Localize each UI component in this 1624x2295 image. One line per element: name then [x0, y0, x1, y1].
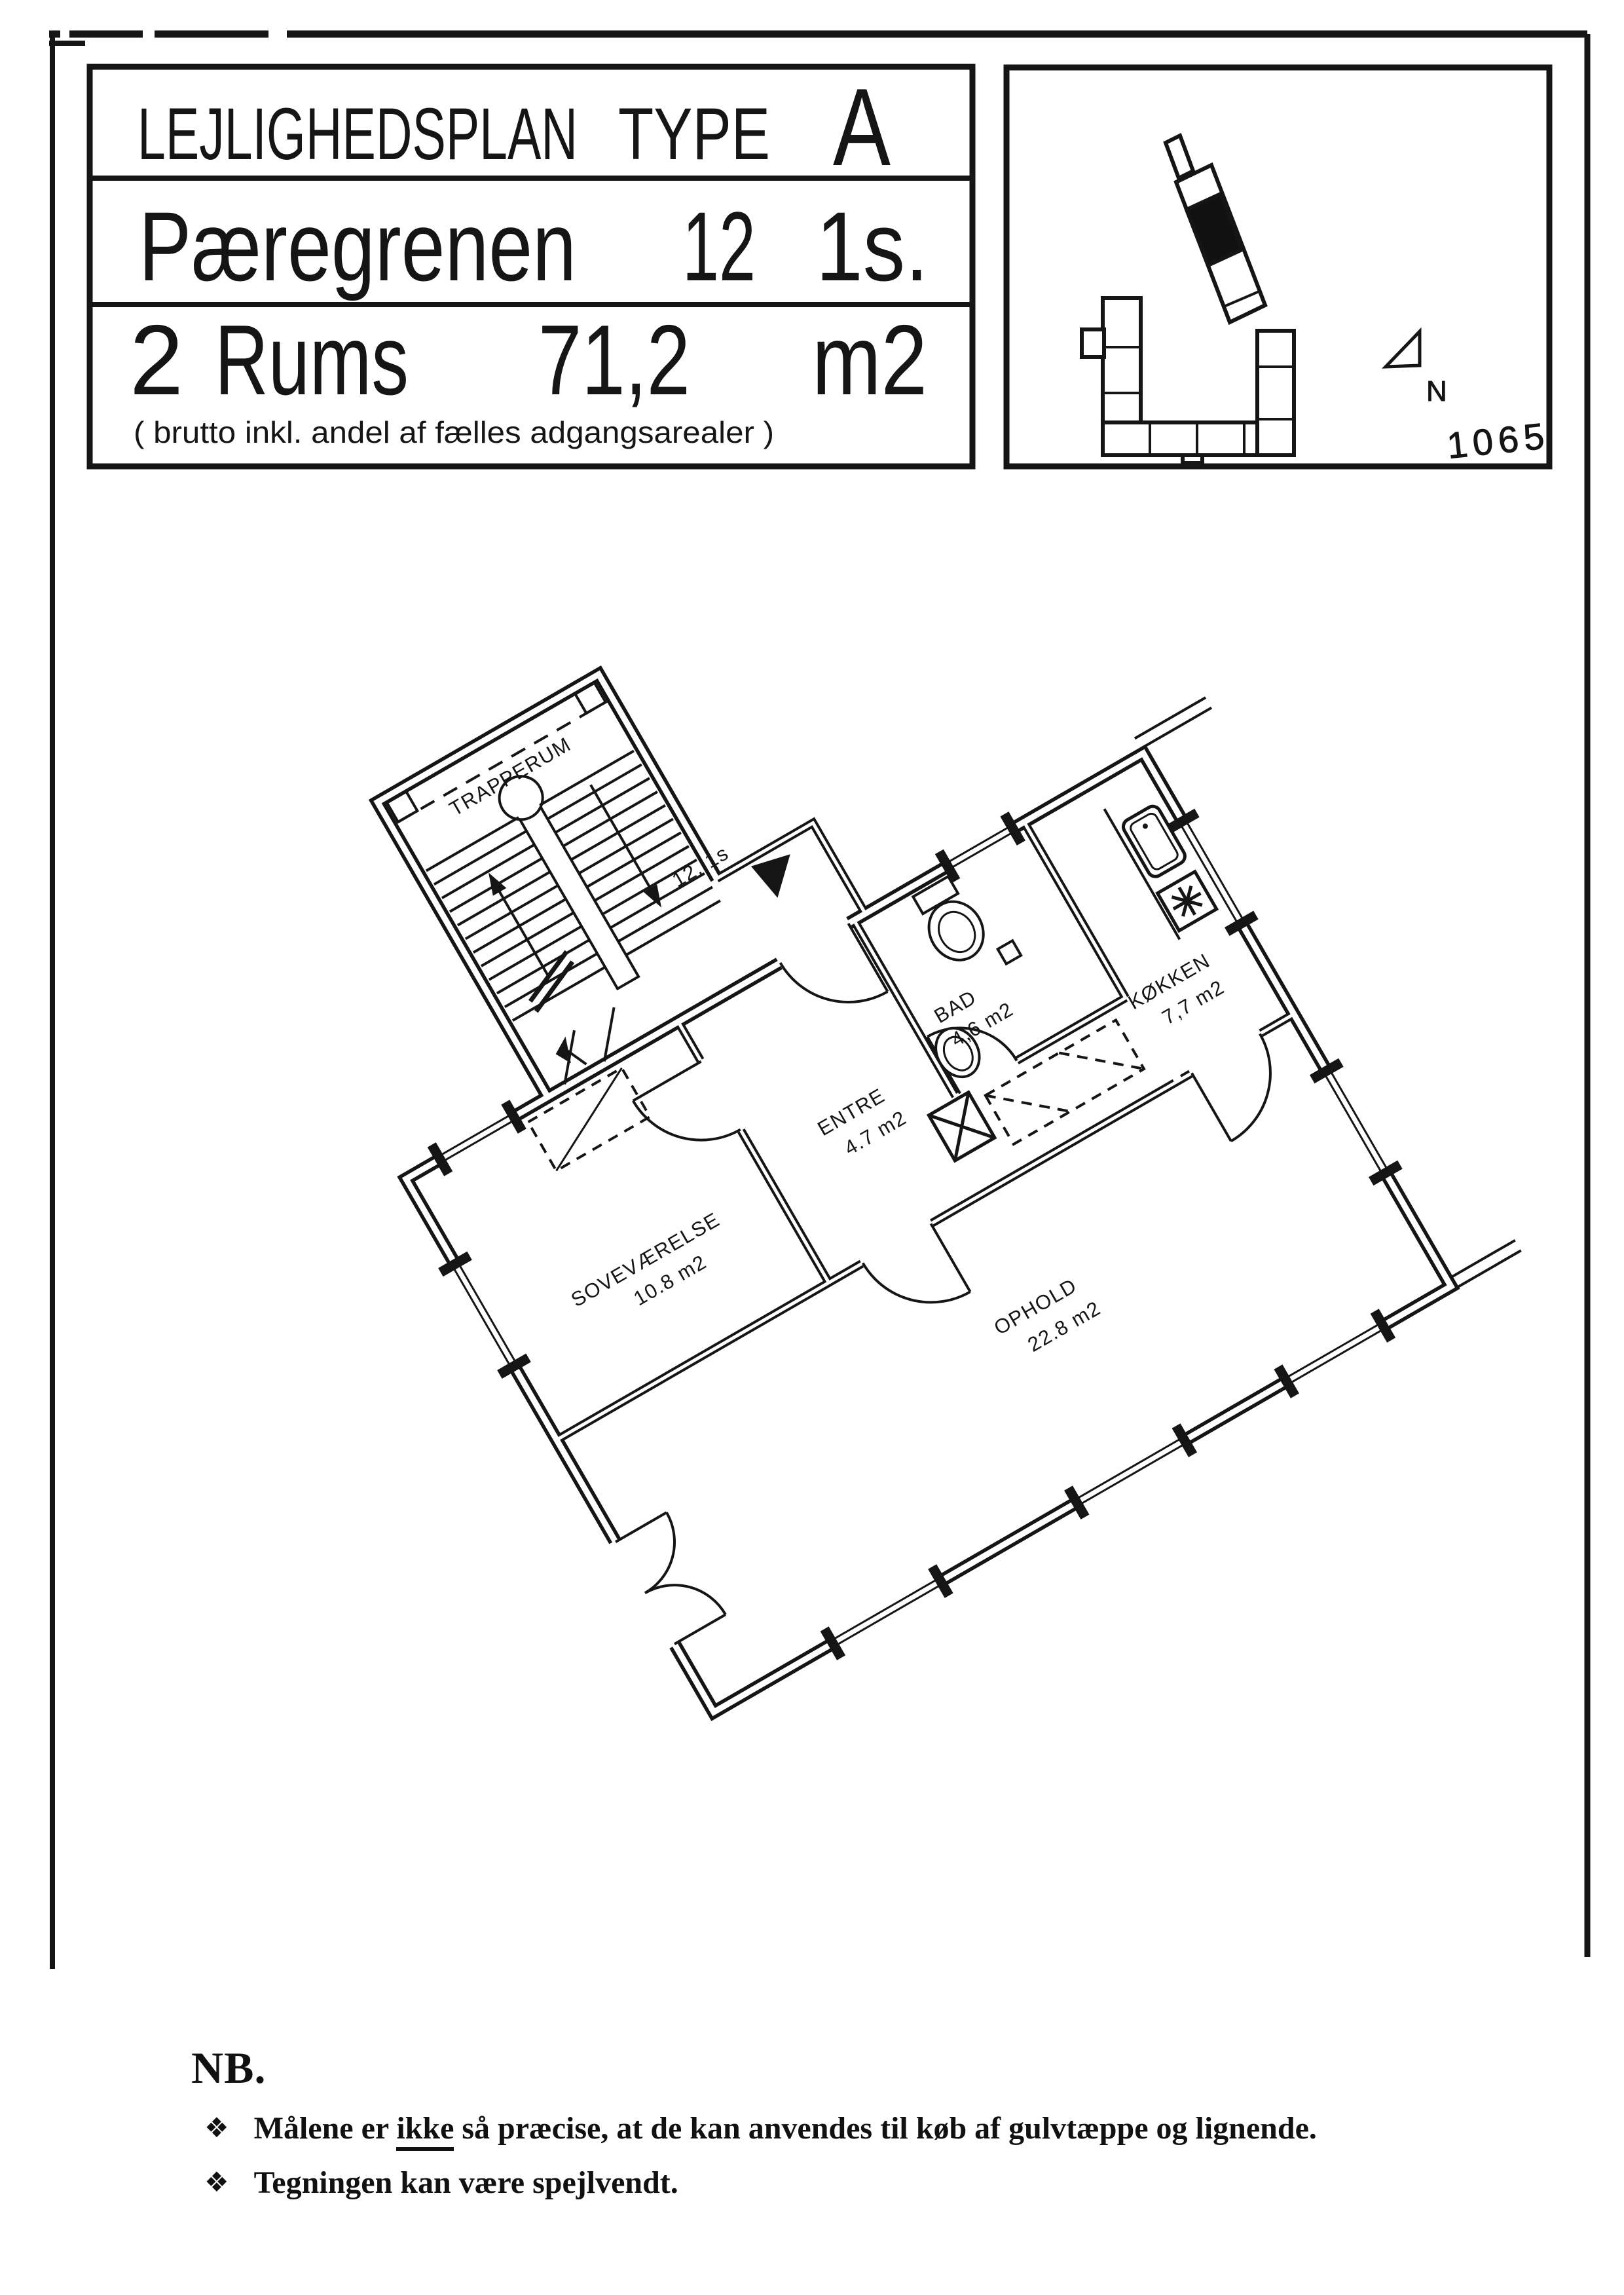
north-label: N: [1426, 375, 1447, 407]
floor-plan: TRAPPERUM 12. 1s SOVEVÆRELSE 10.8 m2 ENT…: [222, 417, 1530, 1734]
note-2-text: Tegningen kan være spejlvendt.: [254, 2165, 678, 2201]
site-map: N 1065: [1006, 67, 1551, 466]
title-heading-word1: LEJLIGHEDSPLAN: [138, 93, 578, 175]
diamond-bullet-icon: ❖: [204, 2166, 229, 2198]
title-heading-word2: TYPE: [618, 93, 770, 175]
title-brutto-note: ( brutto inkl. andel af fælles adgangsar…: [134, 415, 774, 449]
notes-heading: NB.: [191, 2042, 266, 2094]
room-labels: TRAPPERUM 12. 1s SOVEVÆRELSE 10.8 m2 ENT…: [324, 510, 1337, 1542]
note-1-text: Målene er ikke så præcise, at de kan anv…: [254, 2110, 1317, 2146]
title-number: 12: [682, 191, 756, 301]
title-area: 71,2: [538, 305, 690, 416]
title-block: LEJLIGHEDSPLAN TYPE A Pæregrenen 12 1s. …: [90, 65, 972, 466]
title-type-letter: A: [833, 65, 891, 189]
sheet-graphics: LEJLIGHEDSPLAN TYPE A Pæregrenen 12 1s. …: [0, 0, 1624, 2295]
vent-shaft: [929, 1092, 995, 1161]
title-area-unit: m2: [812, 305, 927, 416]
scanned-floorplan-sheet: LEJLIGHEDSPLAN TYPE A Pæregrenen 12 1s. …: [0, 0, 1624, 2295]
title-floor: 1s.: [816, 191, 929, 301]
title-street: Pæregrenen: [139, 191, 576, 301]
title-rooms-count: 2: [130, 305, 183, 416]
note-item-2: ❖ Tegningen kan være spejlvendt.: [204, 2165, 678, 2201]
stairwell: [387, 683, 761, 1091]
note-item-1: ❖ Målene er ikke så præcise, at de kan a…: [204, 2110, 1317, 2146]
title-rooms-word: Rums: [215, 305, 409, 416]
floor-drain: [998, 941, 1022, 964]
stair-arrow-down-line: [591, 785, 654, 893]
diamond-bullet-icon: ❖: [204, 2112, 229, 2144]
